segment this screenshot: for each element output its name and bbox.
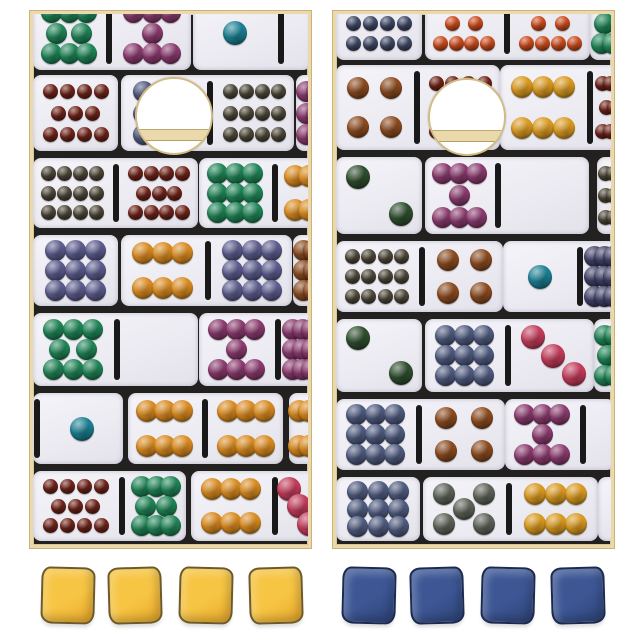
domino-pip (449, 185, 470, 206)
domino-pip (223, 106, 238, 121)
domino-pip (239, 127, 254, 142)
domino-half-9 (293, 235, 308, 306)
domino-tile (33, 75, 118, 151)
domino-pip (454, 365, 475, 386)
domino-pip (45, 280, 66, 301)
domino-pip (261, 240, 282, 261)
domino-pip (57, 205, 72, 220)
board-face-left (33, 14, 308, 545)
domino-pip (45, 240, 66, 261)
domino-pip (394, 269, 409, 284)
domino-half-blank (587, 399, 611, 470)
domino-half-7 (113, 14, 191, 70)
domino-pip (51, 106, 66, 121)
domino-pip (473, 365, 494, 386)
domino-pip (261, 260, 282, 281)
domino-pip (380, 116, 402, 138)
domino-pip (89, 166, 104, 181)
domino-pip (45, 260, 66, 281)
domino-half-3 (279, 471, 308, 541)
domino-pip (255, 106, 270, 121)
board-hole (135, 77, 213, 155)
domino-pip (142, 14, 163, 23)
domino-half-12 (336, 241, 418, 312)
domino-pip (94, 84, 109, 99)
domino-pip (71, 23, 92, 44)
domino-pip (82, 319, 103, 340)
domino-pip (41, 186, 56, 201)
domino-pip (239, 512, 261, 534)
domino-tile (191, 471, 308, 541)
domino-pip (43, 84, 58, 99)
domino-pip (167, 186, 182, 201)
domino-half-6 (128, 393, 201, 464)
domino-pip (223, 84, 238, 99)
domino-pip (63, 359, 84, 380)
domino-half-10 (511, 14, 590, 60)
domino-half-blank (121, 313, 198, 386)
domino-half-blank (502, 157, 589, 234)
domino-pip (85, 106, 100, 121)
domino-pip (345, 249, 360, 264)
domino-tile (128, 393, 283, 464)
domino-pip (135, 496, 156, 517)
domino-pip (532, 117, 554, 139)
domino-tile (336, 14, 422, 60)
domino-pip (597, 345, 611, 366)
domino-pip (94, 127, 109, 142)
domino-pip (378, 249, 393, 264)
domino-row (336, 396, 611, 474)
domino-half-10 (425, 14, 503, 60)
domino-pip (470, 282, 492, 304)
domino-pip (85, 240, 106, 261)
domino-pip (271, 84, 286, 99)
domino-pip (365, 404, 386, 425)
domino-pip (175, 205, 190, 220)
domino-pip (532, 424, 553, 445)
domino-pip (222, 260, 243, 281)
domino-half-9 (584, 241, 611, 312)
domino-pip (433, 483, 455, 505)
domino-pip (244, 319, 265, 340)
domino-half-9 (425, 319, 504, 392)
domino-half-11 (33, 75, 118, 151)
bean-bag-blue-4 (550, 566, 606, 624)
domino-pip (89, 205, 104, 220)
domino-pip (60, 84, 75, 99)
domino-pip (244, 359, 265, 380)
domino-pip (471, 407, 493, 429)
domino-half-4 (336, 65, 413, 150)
domino-half-6 (279, 158, 308, 228)
domino-half-9 (33, 235, 118, 306)
domino-pip (65, 240, 86, 261)
domino-pip (553, 76, 575, 98)
domino-pip (159, 166, 174, 181)
domino-pip (435, 407, 457, 429)
domino-pip (261, 280, 282, 301)
domino-pip (63, 319, 84, 340)
domino-pip (160, 14, 181, 23)
domino-pip (347, 516, 368, 537)
cornhole-board-left (30, 11, 311, 548)
domino-pip (346, 444, 367, 465)
domino-tile (289, 393, 308, 464)
domino-pip (524, 513, 546, 535)
domino-pip (553, 117, 575, 139)
domino-pip (473, 325, 494, 346)
domino-tile (33, 235, 118, 306)
domino-pip (136, 186, 151, 201)
domino-pip (380, 77, 402, 99)
domino-pip (565, 513, 587, 535)
domino-half-7 (425, 157, 494, 234)
domino-row (33, 155, 308, 232)
board-face-right (336, 14, 611, 545)
domino-divider (205, 241, 211, 300)
domino-divider (416, 405, 422, 464)
domino-pip (389, 202, 413, 226)
domino-pip (76, 43, 97, 64)
domino-pip (562, 362, 586, 386)
domino-pip (473, 483, 495, 505)
domino-pip (159, 205, 174, 220)
domino-pip (77, 518, 92, 533)
domino-tile (33, 393, 123, 464)
domino-pip (397, 16, 412, 31)
domino-divider (114, 319, 120, 380)
domino-pip (253, 400, 275, 422)
domino-tile (505, 399, 611, 470)
domino-divider (580, 405, 586, 464)
domino-divider (278, 14, 284, 64)
domino-pip (43, 319, 64, 340)
domino-half-8 (594, 319, 611, 392)
domino-half-1 (503, 241, 576, 312)
domino-half-blank (285, 14, 308, 70)
domino-half-6 (191, 471, 271, 541)
domino-pip (545, 513, 567, 535)
domino-tile (336, 241, 503, 312)
domino-pip (551, 36, 566, 51)
hole-support-band (428, 130, 506, 142)
domino-pip (437, 282, 459, 304)
domino-pip (361, 249, 376, 264)
domino-pip (82, 359, 103, 380)
domino-pip (380, 16, 395, 31)
domino-pip (70, 417, 94, 441)
domino-row (336, 154, 611, 238)
domino-pip (222, 240, 243, 261)
domino-pip (361, 269, 376, 284)
domino-pip (60, 479, 75, 494)
domino-pip (545, 483, 567, 505)
domino-half-12 (214, 75, 294, 151)
domino-pip (378, 289, 393, 304)
domino-pip (77, 127, 92, 142)
domino-pip (519, 36, 534, 51)
domino-tile (33, 14, 191, 70)
domino-tile (336, 319, 422, 392)
domino-pip (365, 424, 386, 445)
domino-pip (226, 339, 247, 360)
domino-pip (464, 36, 479, 51)
domino-pip (435, 440, 457, 462)
domino-pip (567, 36, 582, 51)
domino-pip (142, 23, 163, 44)
domino-tile (121, 235, 292, 306)
domino-pip (242, 280, 263, 301)
domino-tile (597, 157, 611, 234)
domino-pip (73, 205, 88, 220)
domino-tile (500, 65, 611, 150)
domino-half-6 (513, 477, 598, 541)
domino-pip (171, 277, 193, 299)
domino-pip (73, 186, 88, 201)
domino-half-4 (426, 241, 503, 312)
domino-pip (471, 440, 493, 462)
domino-tile (425, 319, 594, 392)
domino-pip (46, 23, 67, 44)
domino-half-9 (212, 235, 292, 306)
domino-tile (423, 477, 598, 541)
domino-pip (41, 166, 56, 181)
domino-pip (255, 127, 270, 142)
domino-half-9 (336, 399, 415, 470)
domino-pip (346, 404, 367, 425)
domino-tile (193, 14, 308, 70)
domino-divider (419, 247, 425, 306)
bean-bag-yellow-2 (107, 566, 163, 624)
domino-divider (504, 14, 510, 54)
domino-pip (43, 127, 58, 142)
domino-row (33, 468, 308, 545)
domino-pip (239, 84, 254, 99)
domino-pip (363, 36, 378, 51)
domino-pip (41, 205, 56, 220)
domino-pip (132, 242, 154, 264)
domino-pip (239, 478, 261, 500)
domino-half-1 (193, 14, 277, 70)
domino-pip (435, 325, 456, 346)
domino-half-3 (512, 319, 594, 392)
domino-row (33, 310, 308, 390)
domino-pip (152, 186, 167, 201)
domino-pip (85, 499, 100, 514)
domino-half-2 (336, 319, 422, 392)
domino-pip (152, 277, 174, 299)
domino-pip (49, 339, 70, 360)
bean-bag-yellow-3 (178, 566, 233, 624)
domino-half-7 (505, 399, 579, 470)
domino-pip (473, 345, 494, 366)
domino-divider (106, 14, 112, 64)
domino-pip (152, 242, 174, 264)
domino-half-7 (199, 313, 274, 386)
domino-tile (293, 235, 308, 306)
domino-tile (33, 471, 186, 541)
domino-pip (470, 249, 492, 271)
domino-pip (94, 479, 109, 494)
domino-pip (60, 518, 75, 533)
domino-pip (160, 476, 181, 497)
domino-tile (336, 399, 505, 470)
domino-pip (43, 518, 58, 533)
domino-half-12 (33, 158, 112, 228)
hole-support-band (135, 129, 213, 141)
domino-half-11 (594, 65, 611, 150)
domino-tile (590, 14, 611, 60)
domino-half-6 (500, 65, 586, 150)
domino-pip (466, 163, 487, 184)
domino-pip (171, 242, 193, 264)
domino-row (336, 474, 611, 545)
domino-divider (34, 399, 40, 458)
domino-pip (65, 280, 86, 301)
domino-tile (598, 477, 611, 541)
domino-pip (368, 516, 389, 537)
bean-bag-blue-3 (480, 566, 535, 624)
domino-pip (223, 21, 247, 45)
domino-pip (346, 16, 361, 31)
domino-pip (160, 43, 181, 64)
domino-divider (275, 319, 281, 380)
domino-half-2 (336, 157, 422, 234)
domino-pip (531, 16, 546, 31)
domino-pip (85, 260, 106, 281)
domino-pip (388, 516, 409, 537)
domino-pip (85, 280, 106, 301)
domino-pip (156, 496, 177, 517)
domino-pip (222, 280, 243, 301)
domino-pip (384, 424, 405, 445)
domino-pip (433, 36, 448, 51)
domino-pip (549, 404, 570, 425)
domino-half-9 (296, 75, 308, 151)
domino-pip (346, 326, 370, 350)
domino-tile (425, 157, 589, 234)
domino-half-8 (590, 14, 611, 60)
domino-half-6 (121, 235, 204, 306)
domino-half-4 (423, 399, 505, 470)
domino-half-6 (289, 393, 308, 464)
domino-pip (346, 424, 367, 445)
domino-pip (346, 165, 370, 189)
domino-pip (239, 106, 254, 121)
domino-tile (594, 319, 611, 392)
domino-divider (202, 399, 208, 458)
domino-row (336, 14, 611, 62)
domino-pip (511, 76, 533, 98)
domino-pip (43, 359, 64, 380)
domino-pip (57, 186, 72, 201)
board-hole (428, 78, 506, 156)
domino-pip (435, 345, 456, 366)
domino-pip (453, 498, 475, 520)
domino-pip (68, 106, 83, 121)
domino-pip (60, 127, 75, 142)
bean-bag-blue-1 (341, 566, 396, 624)
domino-pip (123, 14, 144, 23)
domino-half-5 (423, 477, 505, 541)
domino-pip (132, 277, 154, 299)
domino-pip (445, 16, 460, 31)
domino-pip (365, 444, 386, 465)
domino-pip (524, 483, 546, 505)
domino-pip (68, 499, 83, 514)
domino-pip (171, 435, 193, 457)
domino-pip (77, 84, 92, 99)
domino-half-6 (209, 393, 283, 464)
domino-row (33, 390, 308, 468)
domino-pip (73, 166, 88, 181)
domino-pip (123, 43, 144, 64)
domino-pip (594, 14, 611, 34)
domino-tile (33, 313, 198, 386)
domino-pip (242, 240, 263, 261)
domino-pip (271, 106, 286, 121)
domino-pip (242, 163, 263, 184)
domino-half-8 (33, 313, 113, 386)
domino-tile (199, 158, 308, 228)
domino-row (33, 232, 308, 310)
domino-tile (336, 477, 420, 541)
domino-divider (272, 164, 278, 222)
domino-tile (199, 313, 308, 386)
domino-pip (511, 117, 533, 139)
domino-divider (113, 164, 119, 222)
bean-bag-yellow-4 (248, 566, 304, 624)
domino-pip (521, 325, 545, 349)
domino-pip (555, 16, 570, 31)
domino-half-9 (282, 313, 308, 386)
domino-pip (466, 207, 487, 228)
domino-pip (346, 36, 361, 51)
domino-divider (495, 163, 501, 228)
domino-pip (454, 325, 475, 346)
domino-pip (271, 127, 286, 142)
domino-pip (76, 14, 97, 23)
domino-pip (449, 36, 464, 51)
domino-divider (577, 247, 583, 306)
domino-pip (454, 345, 475, 366)
domino-divider (506, 483, 512, 535)
domino-pip (535, 36, 550, 51)
domino-tile (503, 241, 611, 312)
domino-half-8 (33, 14, 105, 70)
domino-pip (345, 289, 360, 304)
domino-pip (223, 127, 238, 142)
domino-half-12 (597, 157, 611, 234)
domino-pip (384, 444, 405, 465)
domino-pip (171, 400, 193, 422)
bean-bag-blue-2 (409, 566, 465, 624)
domino-pip (144, 205, 159, 220)
domino-pip (397, 36, 412, 51)
domino-pip (363, 16, 378, 31)
domino-row (336, 316, 611, 396)
domino-pip (144, 166, 159, 181)
domino-divider (587, 71, 593, 144)
domino-pip (51, 499, 66, 514)
domino-pip (242, 260, 263, 281)
domino-pip (255, 84, 270, 99)
domino-pip (433, 513, 455, 535)
domino-pip (380, 36, 395, 51)
domino-half-11 (120, 158, 198, 228)
domino-tile (33, 158, 198, 228)
